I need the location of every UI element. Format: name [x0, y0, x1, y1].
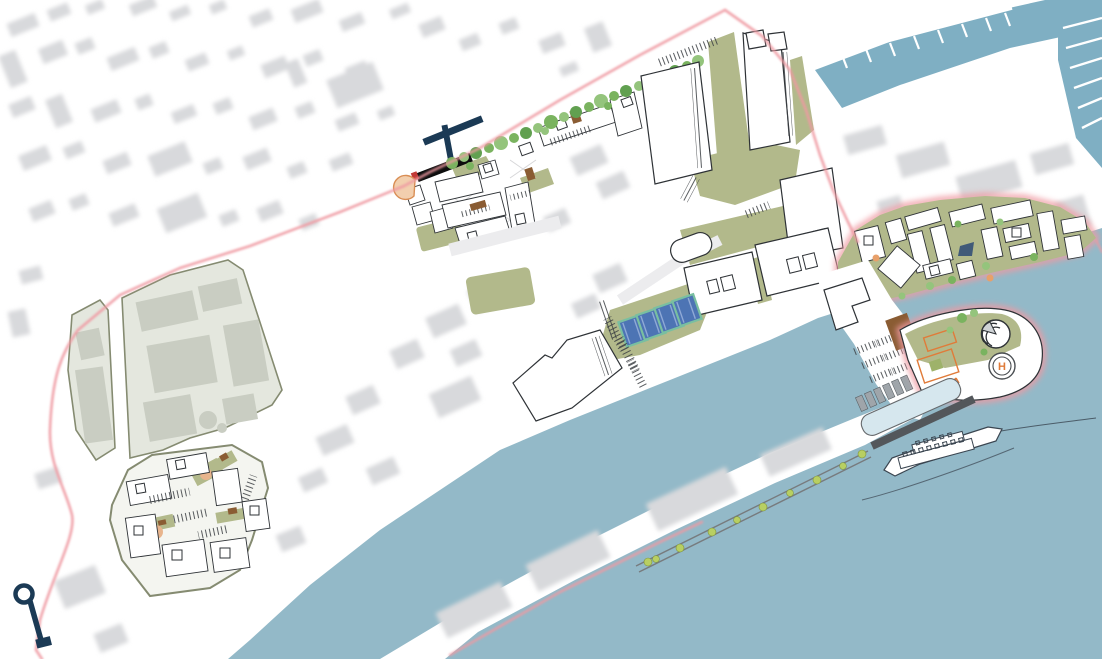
marina-basin-east — [1058, 0, 1102, 168]
site-plan-map: H — [0, 0, 1102, 659]
amphitheater — [394, 175, 415, 199]
key-landmark-icon — [16, 586, 52, 649]
map-canvas: H — [0, 0, 1102, 659]
left-parcels — [68, 260, 282, 460]
helipad-label: H — [998, 361, 1006, 373]
courtyard-block — [110, 445, 270, 596]
helipad: H — [989, 353, 1015, 379]
shell-pavilion — [981, 320, 1010, 348]
peninsula-park: H — [900, 308, 1042, 400]
